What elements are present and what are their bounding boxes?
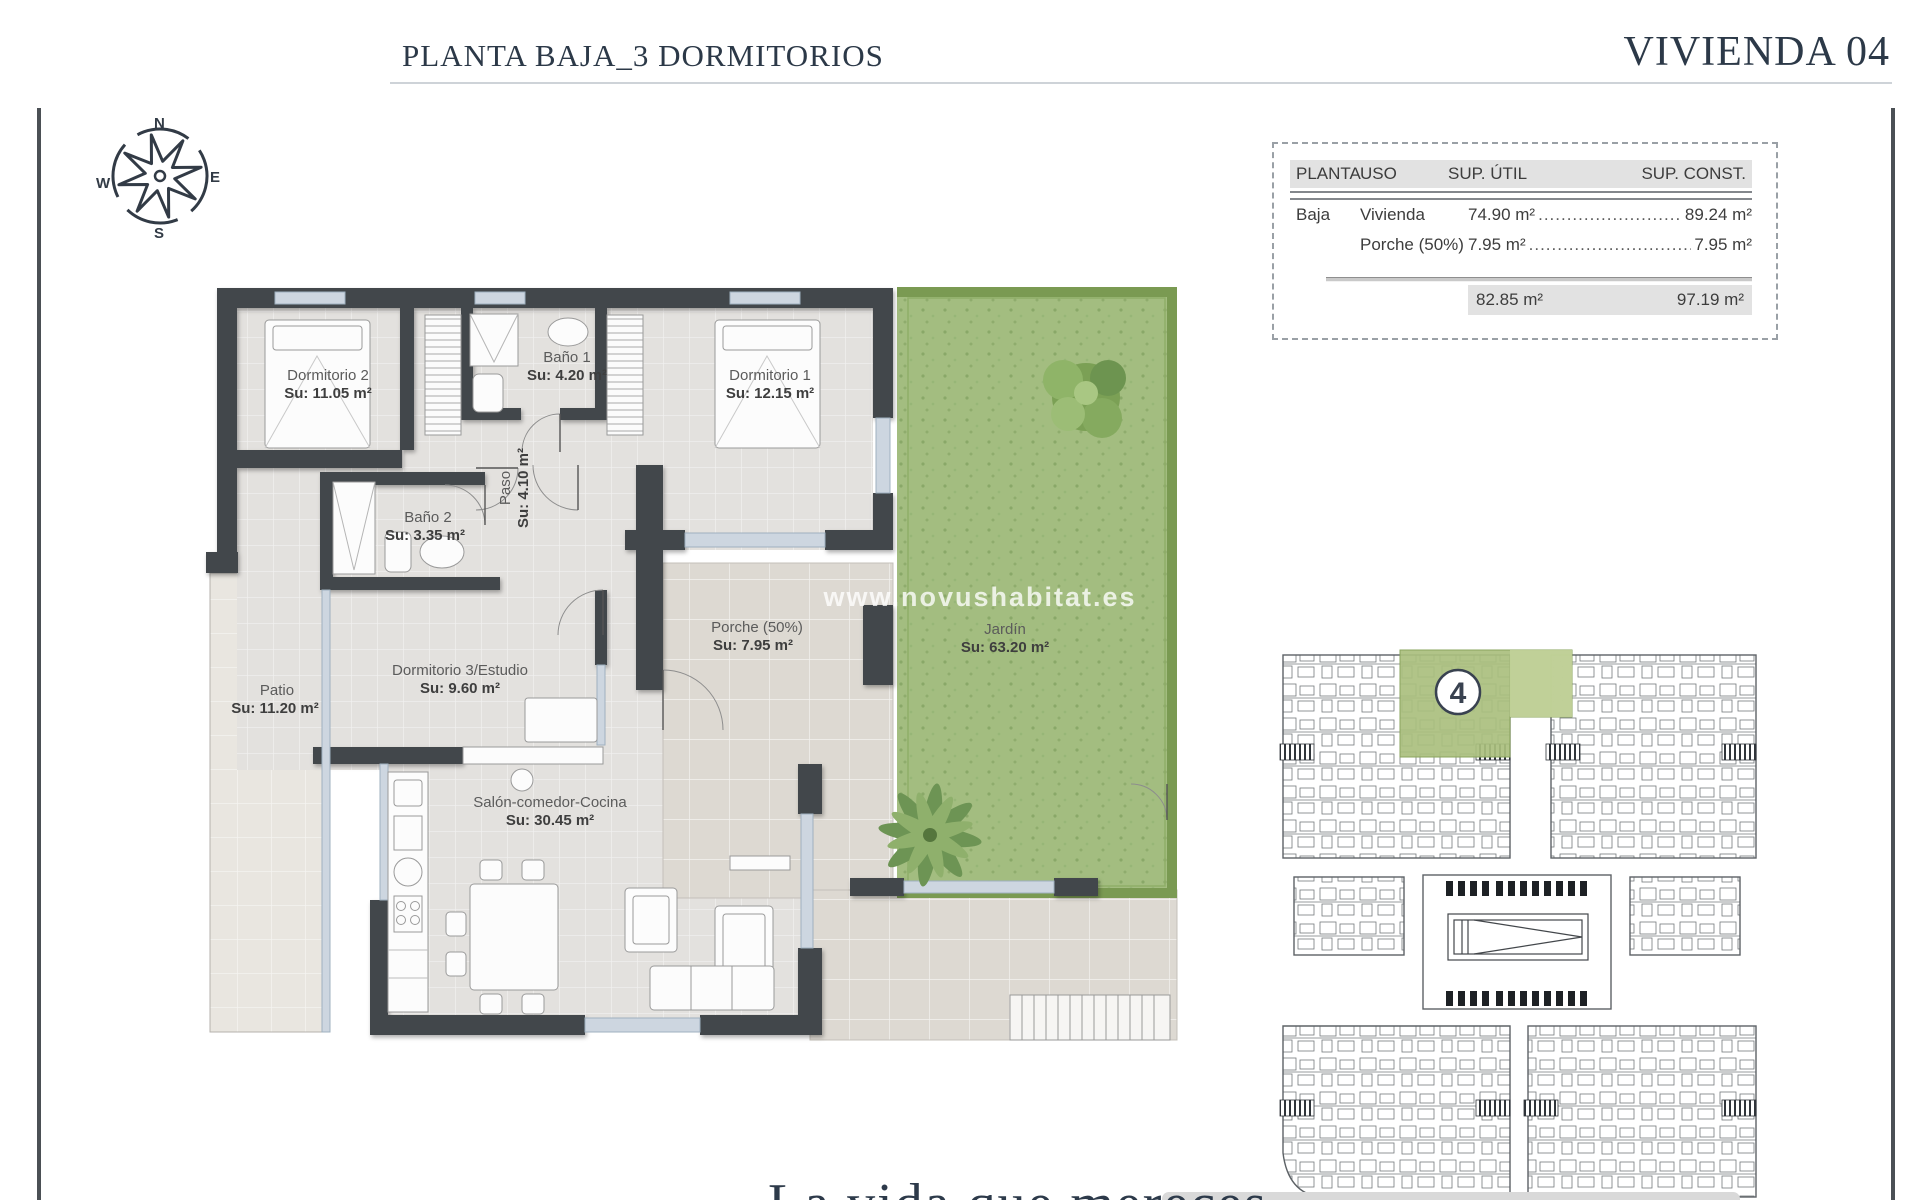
block-mid-right bbox=[1630, 877, 1740, 955]
wardrobe bbox=[425, 315, 461, 435]
label-bano2: Baño 2 bbox=[404, 509, 452, 526]
wardrobe bbox=[607, 315, 643, 435]
cell-const: 89.24 m² bbox=[1685, 205, 1752, 225]
desk-chair bbox=[511, 769, 533, 791]
area-jardin: Su: 63.20 m² bbox=[961, 639, 1049, 656]
bed-dormitorio1 bbox=[715, 320, 820, 448]
courtyard bbox=[1423, 875, 1611, 1009]
cell-uso: Porche (50%) bbox=[1360, 235, 1468, 255]
site-key-plan: 4 bbox=[1278, 648, 1898, 1200]
label-paso: Paso bbox=[497, 471, 514, 505]
watermark: www.novushabitat.es bbox=[822, 582, 1136, 612]
header-divider bbox=[390, 82, 1892, 84]
terrace-steps bbox=[1010, 995, 1170, 1040]
unit-number: 4 bbox=[1450, 677, 1467, 710]
label-dormitorio3: Dormitorio 3/Estudio bbox=[392, 662, 528, 679]
table-header-rule bbox=[1290, 191, 1752, 200]
label-salon: Salón-comedor-Cocina bbox=[473, 794, 627, 811]
sideboard bbox=[730, 856, 790, 870]
table-row: Porche (50%) 7.95 m² ...................… bbox=[1296, 234, 1752, 256]
area-patio: Su: 11.20 m² bbox=[231, 700, 319, 717]
brochure-page: PLANTA BAJA_3 DORMITORIOS VIVIENDA 04 N … bbox=[0, 0, 1920, 1200]
table-header-row: PLANTA USO SUP. ÚTIL SUP. CONST. bbox=[1290, 160, 1752, 188]
col-planta: PLANTA bbox=[1296, 164, 1360, 184]
area-bano2: Su: 3.35 m² bbox=[385, 527, 465, 544]
label-patio: Patio bbox=[260, 682, 294, 699]
area-porche: Su: 7.95 m² bbox=[713, 637, 793, 654]
bed-dormitorio2 bbox=[265, 320, 370, 448]
label-dormitorio2: Dormitorio 2 bbox=[287, 367, 369, 384]
compass-e: E bbox=[210, 169, 220, 186]
total-util: 82.85 m² bbox=[1476, 290, 1543, 310]
unit-title: VIVIENDA 04 bbox=[1624, 28, 1890, 76]
label-dormitorio1: Dormitorio 1 bbox=[729, 367, 811, 384]
area-dormitorio3: Su: 9.60 m² bbox=[420, 680, 500, 697]
compass-n: N bbox=[154, 115, 165, 132]
kitchen-counter bbox=[388, 772, 428, 1012]
tagline: La vida que mereces bbox=[768, 1172, 1268, 1200]
sofa-bed bbox=[525, 698, 597, 742]
surface-area-table: PLANTA USO SUP. ÚTIL SUP. CONST. Baja Vi… bbox=[1272, 142, 1778, 340]
cell-util: 74.90 m² bbox=[1468, 205, 1535, 225]
cell-uso: Vivienda bbox=[1360, 205, 1468, 225]
area-dormitorio1: Su: 12.15 m² bbox=[726, 385, 814, 402]
cell-util: 7.95 m² bbox=[1468, 235, 1526, 255]
dotted-leader: ...................................... bbox=[1529, 235, 1692, 255]
label-porche: Porche (50%) bbox=[711, 619, 803, 636]
desk-shelf bbox=[463, 747, 603, 764]
table-row: Baja Vivienda 74.90 m² .................… bbox=[1296, 204, 1752, 226]
dotted-leader: ...................................... bbox=[1538, 205, 1682, 225]
compass-rose-icon: N E S W bbox=[88, 106, 232, 242]
table-totals-row: 82.85 m² 97.19 m² bbox=[1468, 285, 1752, 315]
floor-plan: www.novushabitat.es Dormitorio 2 Su: 11.… bbox=[170, 260, 1200, 1060]
cell-planta: Baja bbox=[1296, 205, 1360, 225]
label-jardin: Jardín bbox=[984, 621, 1026, 638]
compass-s: S bbox=[154, 225, 164, 242]
label-bano1: Baño 1 bbox=[543, 349, 591, 366]
table-total-rule bbox=[1326, 277, 1752, 282]
col-sup-util: SUP. ÚTIL bbox=[1448, 164, 1598, 184]
area-bano1: Su: 4.20 m² bbox=[527, 367, 607, 384]
highlight-unit-4: 4 bbox=[1400, 650, 1572, 757]
total-const: 97.19 m² bbox=[1543, 290, 1752, 310]
area-paso: Su: 4.10 m² bbox=[515, 448, 532, 528]
area-dormitorio2: Su: 11.05 m² bbox=[284, 385, 372, 402]
area-salon: Su: 30.45 m² bbox=[506, 812, 594, 829]
block-mid-left bbox=[1294, 877, 1404, 955]
page-title: PLANTA BAJA_3 DORMITORIOS bbox=[402, 38, 884, 74]
porch-floor bbox=[663, 563, 893, 898]
compass-w: W bbox=[96, 175, 111, 192]
cell-const: 7.95 m² bbox=[1694, 235, 1752, 255]
page-border-left bbox=[37, 108, 41, 1200]
col-sup-const: SUP. CONST. bbox=[1598, 164, 1752, 184]
col-uso: USO bbox=[1360, 164, 1448, 184]
